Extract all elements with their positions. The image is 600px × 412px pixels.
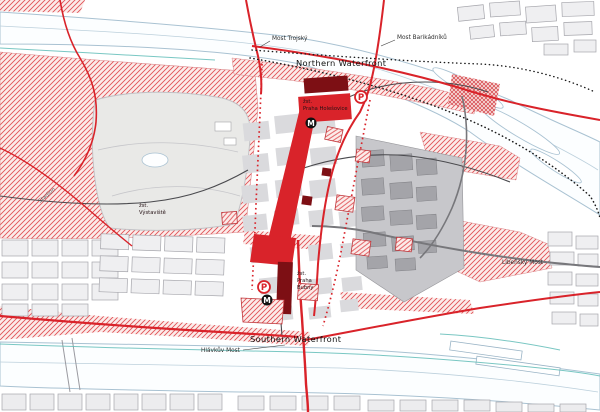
label-zst-vystaviste-2: Výstaviště — [139, 209, 166, 216]
urban-plan-map: M P P M Most Trojský Most Barikádníků No… — [0, 0, 600, 412]
label-zst-bubny-3: Bubny — [297, 285, 314, 291]
metro-icon-label: M — [307, 119, 315, 128]
label-zst-holesovice-2: Praha Holešovice — [303, 105, 348, 112]
stromovka-park — [92, 92, 250, 230]
map-canvas: M P P M Most Trojský Most Barikádníků No… — [0, 0, 600, 412]
label-most-barikadniku: Most Barikádníků — [397, 34, 447, 41]
label-zst-bubny-1: žst. — [297, 270, 306, 277]
metro-icon: M — [306, 118, 317, 129]
label-zst-bubny-2: Praha — [297, 278, 312, 284]
label-southern-waterfront: Southern Waterfront — [250, 334, 342, 344]
parking-icon-label: P — [261, 283, 267, 293]
metro-icon-label: M — [263, 296, 271, 305]
label-libensky-most: Libeňský Most — [502, 259, 544, 266]
label-northern-waterfront: Northern Waterfront — [296, 58, 387, 68]
label-zst-holesovice-1: žst. — [303, 98, 312, 105]
metro-icon-south: M — [262, 295, 273, 306]
parking-icon: P — [355, 91, 367, 103]
parking-icon-south: P — [258, 281, 270, 293]
parking-icon-label: P — [358, 93, 364, 103]
label-hlavkuv-most: Hlávkův Most — [201, 347, 241, 354]
label-zst-vystaviste-1: žst. — [139, 202, 148, 209]
label-most-trojsky: Most Trojský — [272, 35, 308, 42]
existing-city-blocks — [356, 136, 464, 302]
